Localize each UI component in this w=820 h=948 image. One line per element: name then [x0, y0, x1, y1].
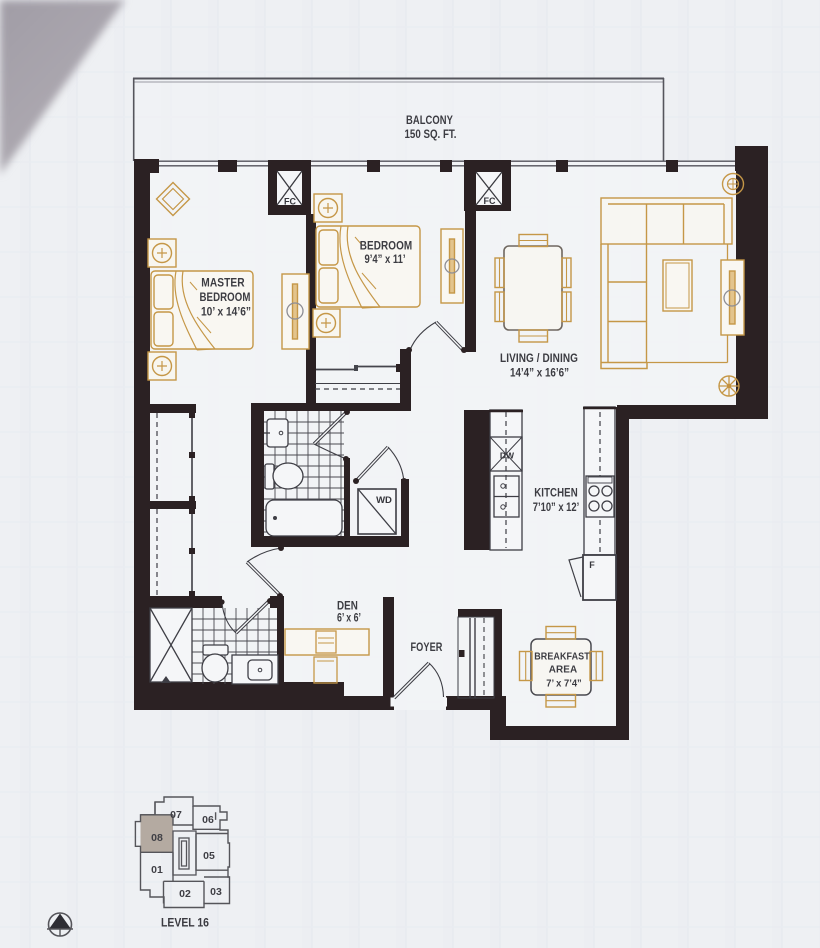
svg-text:10’ x 14’6”: 10’ x 14’6” [201, 307, 251, 319]
svg-text:DEN: DEN [337, 601, 358, 613]
svg-text:FC: FC [484, 196, 496, 206]
svg-text:KITCHEN: KITCHEN [534, 488, 578, 500]
svg-text:9’4” x 11’: 9’4” x 11’ [365, 254, 406, 266]
svg-text:DW: DW [500, 451, 515, 461]
svg-text:LIVING / DINING: LIVING / DINING [500, 353, 578, 365]
svg-text:01: 01 [151, 864, 163, 876]
svg-text:FOYER: FOYER [411, 642, 443, 654]
svg-text:05: 05 [203, 850, 215, 862]
svg-text:BALCONY: BALCONY [406, 115, 453, 127]
svg-text:150 SQ. FT.: 150 SQ. FT. [405, 129, 457, 141]
svg-text:LEVEL 16: LEVEL 16 [161, 916, 209, 930]
svg-text:MASTER: MASTER [201, 278, 245, 290]
svg-text:BREAKFAST: BREAKFAST [534, 652, 590, 663]
svg-text:06: 06 [202, 814, 214, 826]
svg-text:6’ x 6’: 6’ x 6’ [337, 613, 361, 625]
svg-text:7’ x 7’4”: 7’ x 7’4” [546, 679, 582, 690]
svg-text:BEDROOM: BEDROOM [200, 292, 251, 304]
svg-text:03: 03 [210, 886, 222, 898]
svg-text:WD: WD [376, 495, 392, 506]
svg-text:02: 02 [179, 888, 191, 900]
svg-text:07: 07 [170, 809, 182, 821]
svg-text:F: F [589, 560, 595, 570]
svg-text:BEDROOM: BEDROOM [360, 241, 413, 253]
svg-text:AREA: AREA [549, 665, 578, 676]
svg-text:FC: FC [284, 197, 296, 207]
svg-text:08: 08 [151, 832, 163, 844]
svg-text:7’10” x 12’: 7’10” x 12’ [533, 502, 580, 514]
svg-text:14’4” x 16’6”: 14’4” x 16’6” [510, 368, 569, 380]
